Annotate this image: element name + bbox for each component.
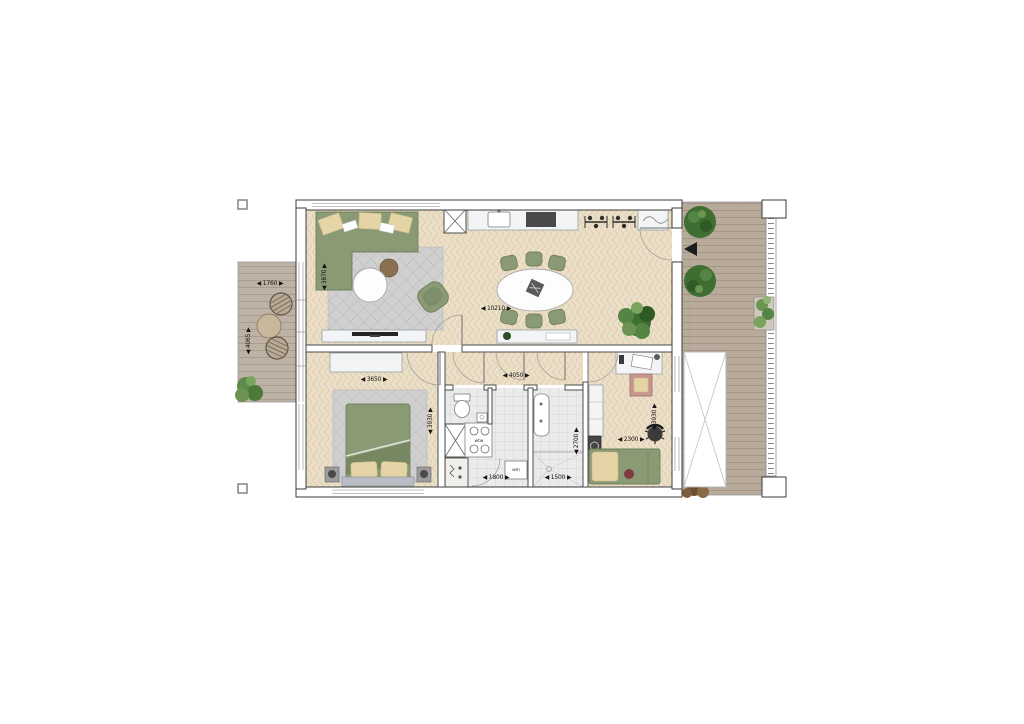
dining-chair — [526, 314, 542, 328]
grid-marker-top — [238, 200, 247, 209]
shower-drain-icon — [547, 467, 552, 472]
speaker-icon — [328, 470, 336, 478]
balcony-table — [257, 314, 281, 338]
dim-hall-width: ◀ 4050 ▶ — [503, 372, 530, 379]
dining-chair — [548, 308, 567, 325]
dim-balcony-width: ◀ 1760 ▶ — [257, 280, 284, 287]
dim-living-depth: ◀ 3870 ▶ — [321, 263, 328, 290]
wall-living-split-right — [462, 345, 672, 352]
sideboard-plant — [503, 332, 511, 340]
toilet-bowl — [455, 401, 470, 418]
grid-marker-bottom — [238, 484, 247, 493]
floor-plan: ◀ 1760 ▶ ◀ 4065 ▶ — [0, 0, 1024, 724]
terrace-pier-top — [762, 200, 786, 218]
desk-item — [619, 355, 624, 364]
wall-right-upper — [672, 208, 682, 228]
label-wtw: wtw — [475, 438, 484, 444]
dining-chair — [526, 252, 542, 266]
label-wm: wm — [512, 468, 520, 473]
dining-chair — [548, 254, 567, 271]
wardrobe — [589, 385, 603, 437]
dim-bedroom2-depth: ◀ 3930 ▶ — [651, 403, 658, 430]
dresser — [330, 353, 402, 372]
terrace-railing — [766, 218, 776, 476]
dim-bathroom-depth: ◀ 2700 ▶ — [573, 427, 580, 454]
faucet-icon — [540, 420, 543, 423]
wall-top — [296, 200, 682, 210]
kitchen-counter — [468, 208, 578, 230]
wall-bedroom1-right — [438, 352, 445, 487]
kitchen-sink — [488, 212, 510, 227]
terrace-planter — [754, 296, 774, 330]
stool-cushion — [634, 378, 648, 392]
bed-pillow — [351, 461, 378, 478]
cooktop — [526, 212, 556, 227]
red-toy — [624, 469, 634, 479]
faucet-icon — [540, 403, 543, 406]
wall-toilet-divider — [488, 388, 492, 424]
dim-laundry-width: ◀ 1800 ▶ — [483, 474, 510, 481]
window-balcony — [297, 262, 305, 402]
sofa-cushion — [359, 212, 382, 229]
coffee-table — [353, 268, 387, 302]
terrace-pier-bottom — [762, 477, 786, 497]
wall-stub — [445, 385, 453, 390]
dim-bedroom2-width: ◀ 2300 ▶ — [618, 436, 645, 443]
dining-chair — [500, 254, 519, 271]
floor-plan-svg: ◀ 1760 ▶ ◀ 4065 ▶ — [0, 0, 1024, 724]
wall-living-split-left — [306, 345, 432, 352]
window-bedroom1-left — [297, 404, 305, 470]
wall-laundry-bath — [528, 388, 533, 487]
headboard — [342, 477, 414, 486]
balcony-left: ◀ 1760 ▶ ◀ 4065 ▶ — [235, 262, 298, 402]
meter-cabinet — [445, 458, 468, 487]
kitchen-shaft — [444, 209, 466, 233]
terrace-shrub — [684, 206, 716, 238]
desk-lamp-icon — [654, 354, 660, 360]
terrace-shrub — [684, 265, 716, 297]
dim-bedroom1-depth: ◀ 3930 ▶ — [427, 407, 434, 434]
wall-stub — [565, 385, 583, 390]
dim-balcony-depth: ◀ 4065 ▶ — [245, 327, 252, 354]
daybed-pillow — [592, 452, 618, 481]
bed-pillow — [381, 461, 408, 478]
dim-bedroom1-width: ◀ 3650 ▶ — [361, 376, 388, 383]
bath-vanity — [534, 394, 549, 436]
wall-bottom — [296, 487, 682, 497]
entry-cabinet — [638, 210, 668, 230]
toilet-basin — [477, 413, 487, 422]
shaft — [445, 424, 466, 457]
kitchen — [444, 208, 578, 233]
dim-bathroom-width: ◀ 1500 ▶ — [545, 474, 572, 481]
toilet-tank — [454, 394, 470, 401]
dim-living-length: ◀ 10210 ▶ — [481, 305, 512, 312]
void-hatch — [684, 352, 726, 487]
wall-bath-bedroom2 — [583, 382, 588, 487]
sideboard-books — [546, 333, 570, 340]
speaker-icon — [420, 470, 428, 478]
